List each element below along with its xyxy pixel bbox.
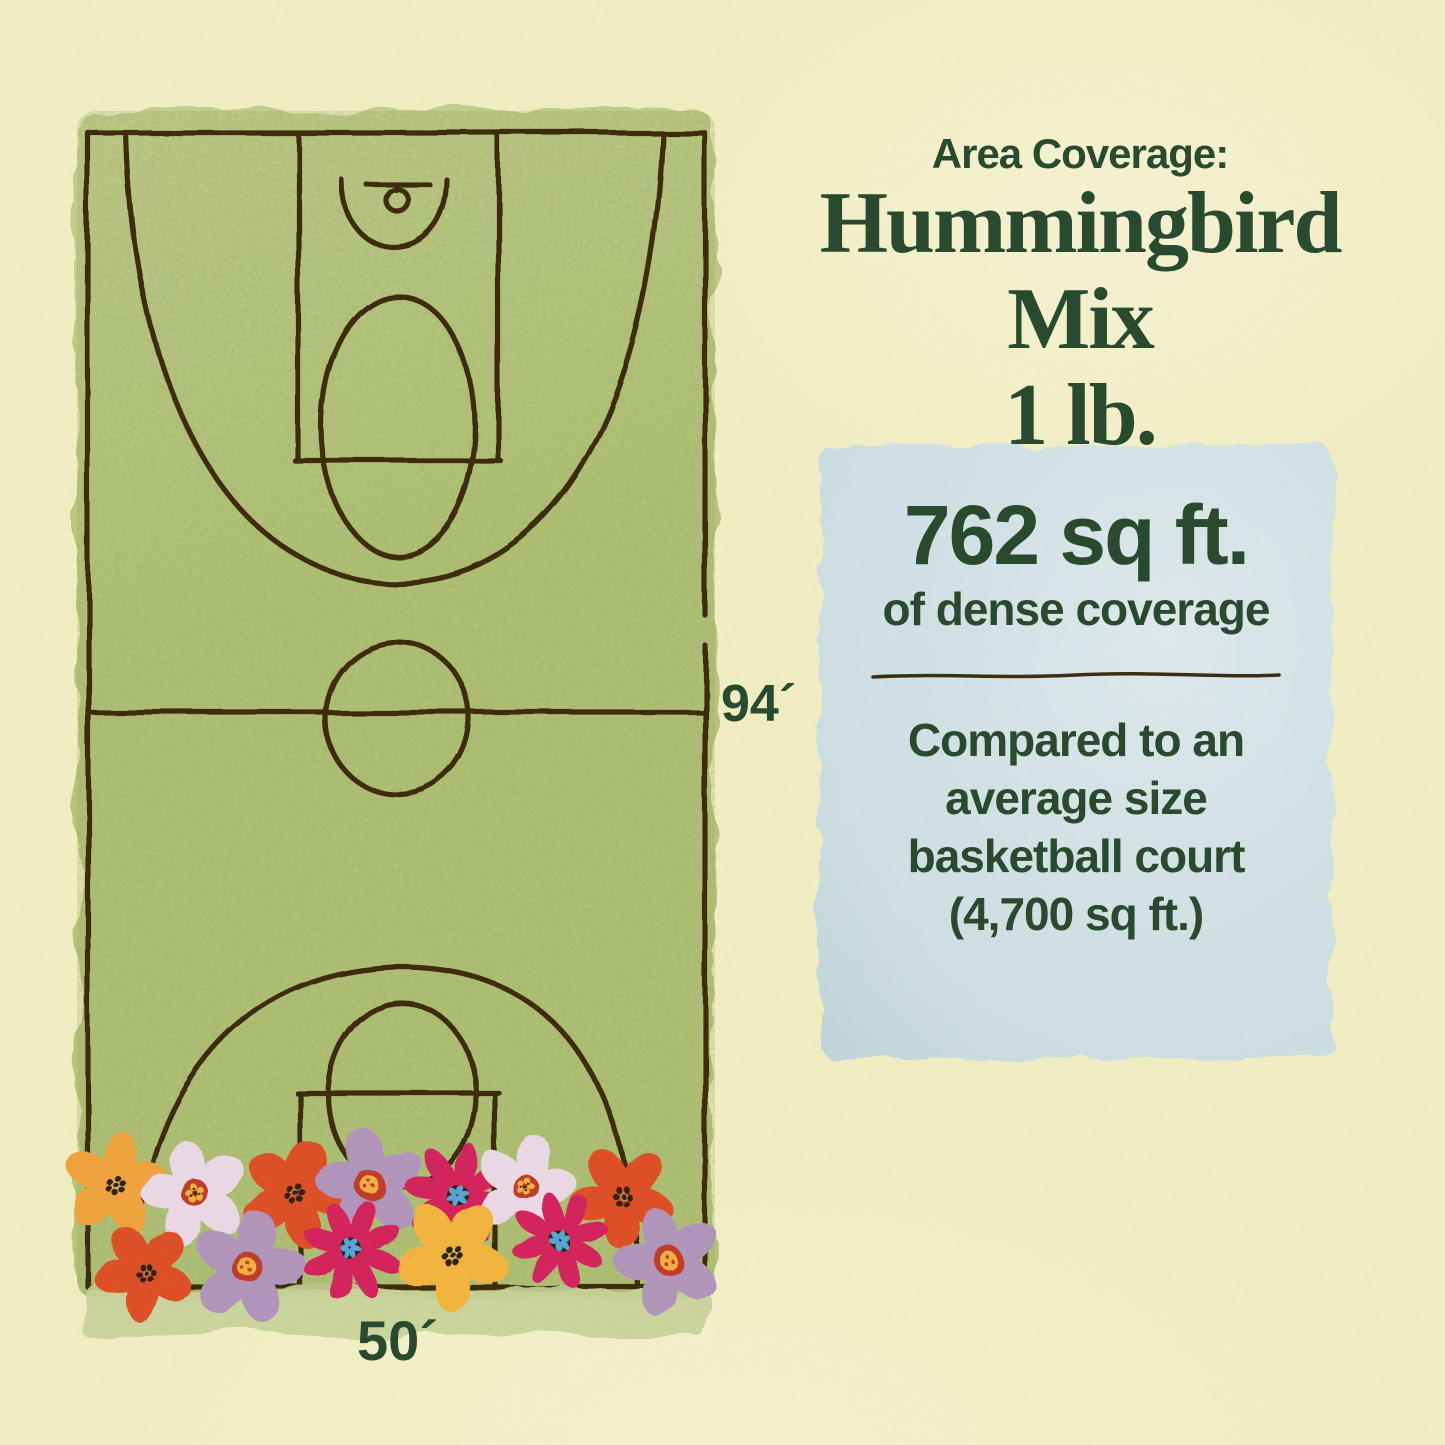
infographic-area-coverage: Area Coverage: Hummingbird Mix 1 lb. 762…: [0, 0, 1445, 1445]
product-title-line1: Hummingbird Mix: [755, 176, 1405, 368]
coverage-value: 762 sq ft.: [820, 489, 1332, 581]
court-width-label: 50´: [330, 1308, 465, 1373]
comparison-text: Compared to an average size basketball c…: [820, 711, 1332, 943]
hand-drawn-divider: [870, 671, 1282, 681]
court-watercolor-wash: [77, 111, 715, 1297]
coverage-caption: of dense coverage: [820, 583, 1332, 635]
product-title: Hummingbird Mix 1 lb.: [755, 176, 1405, 464]
basketball-court-illustration: [55, 85, 735, 1405]
comparison-line: basketball court: [820, 827, 1332, 885]
comparison-line: Compared to an: [820, 711, 1332, 769]
comparison-line: (4,700 sq ft.): [820, 885, 1332, 943]
kicker-area-coverage: Area Coverage:: [755, 130, 1405, 178]
coverage-panel: 762 sq ft. of dense coverage Compared to…: [820, 445, 1332, 943]
court-length-label: 94´: [721, 674, 796, 734]
comparison-line: average size: [820, 769, 1332, 827]
